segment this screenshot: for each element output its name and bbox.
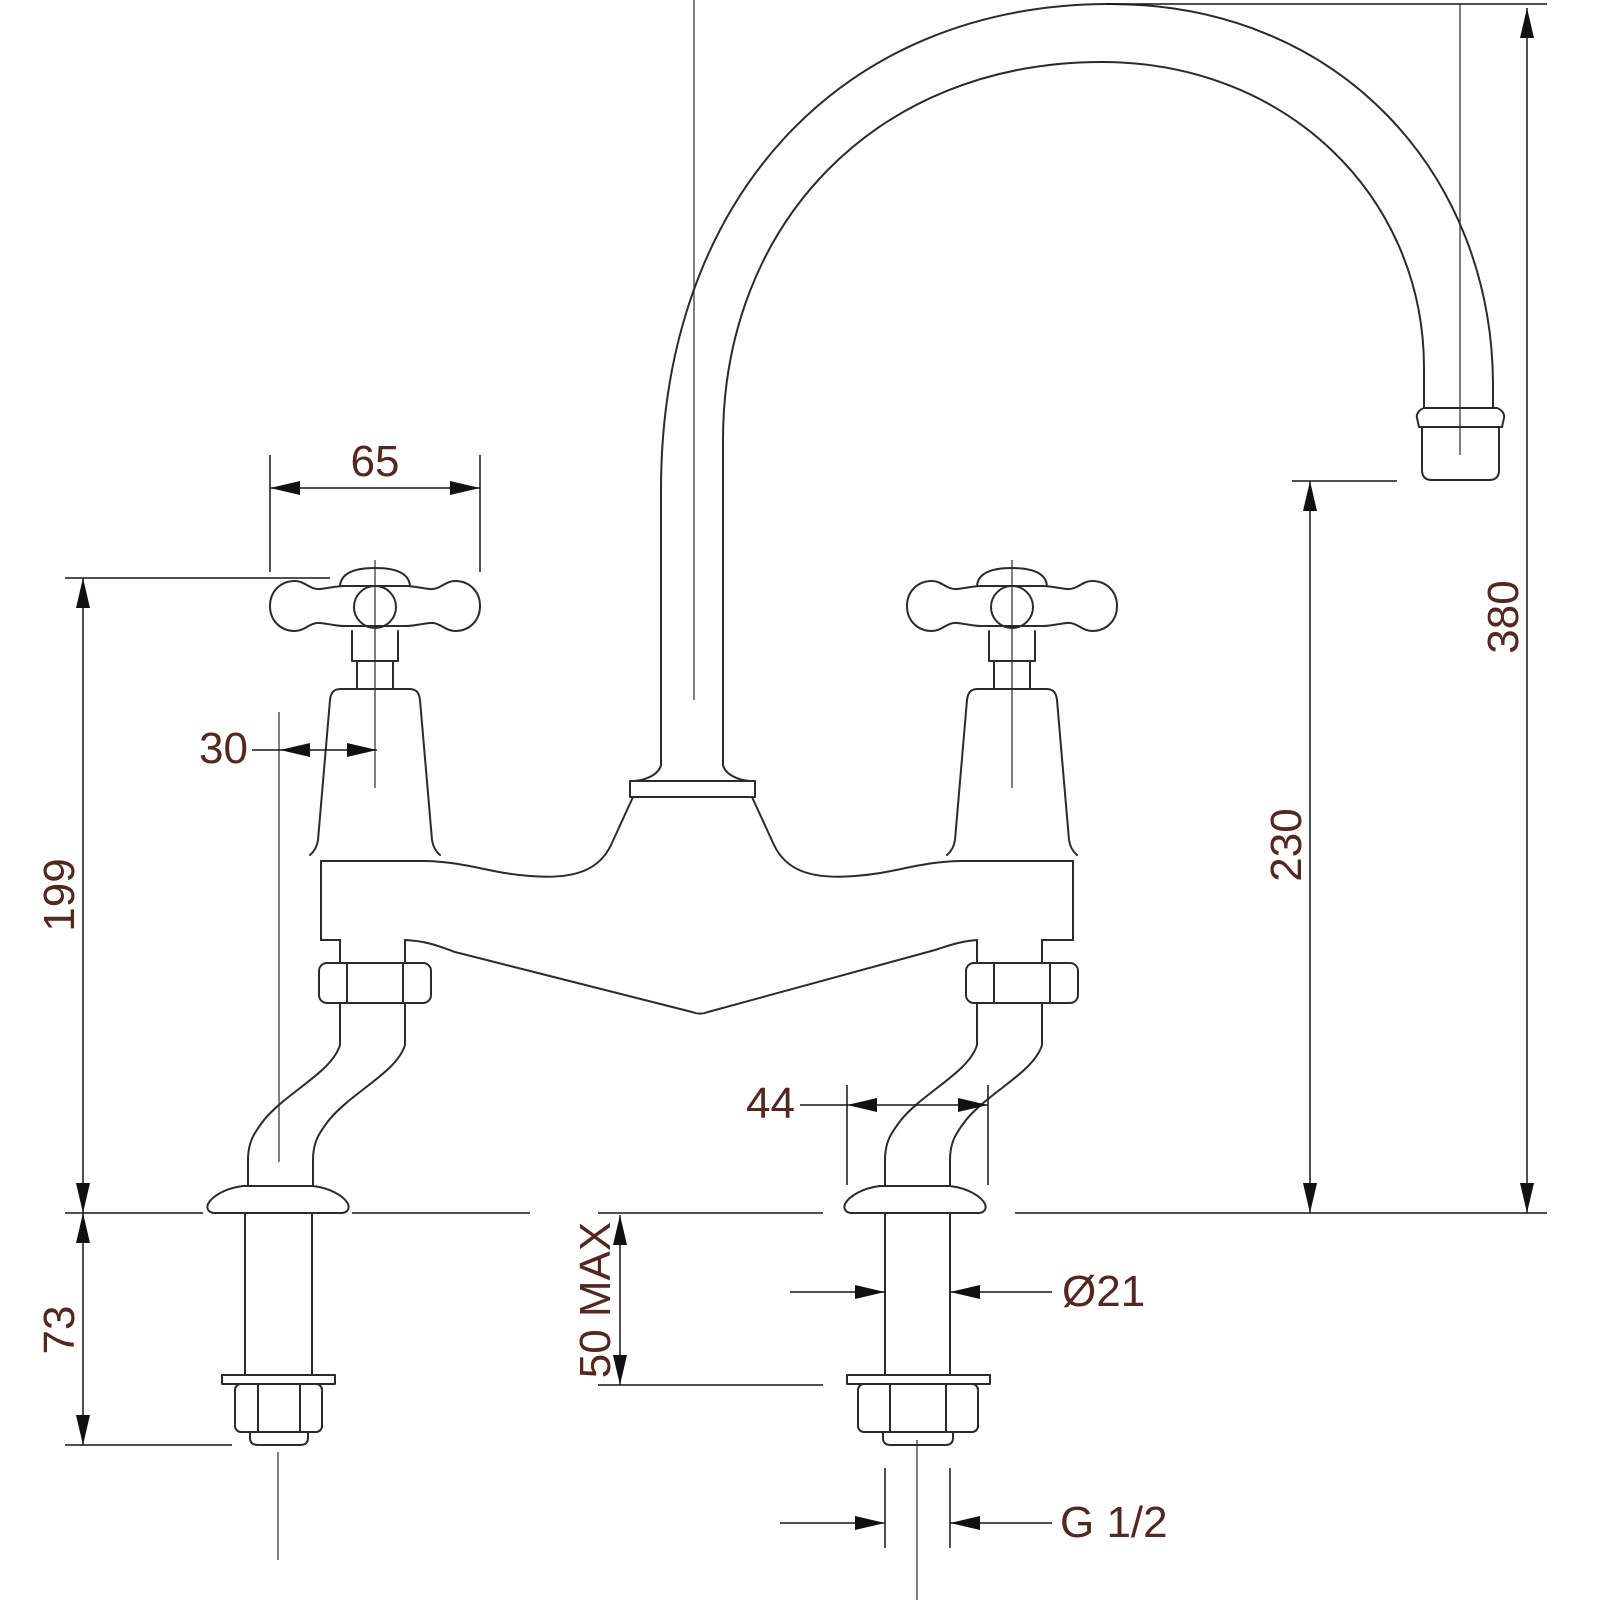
- arrow-dia21-left: [855, 1285, 885, 1299]
- right-sbend-inner: [950, 1003, 1042, 1186]
- arrow-230-bottom: [1303, 1183, 1317, 1213]
- left-sbend-outer: [248, 1003, 340, 1186]
- left-shank: [245, 1213, 312, 1375]
- arrow-44-right: [958, 1098, 988, 1112]
- dim-label-shank-diameter: Ø21: [1062, 1267, 1145, 1316]
- arrow-73-top: [76, 1213, 90, 1243]
- arrow-30-left: [280, 743, 310, 757]
- right-hex-nut: [966, 963, 1078, 1003]
- left-hex-nut: [319, 963, 431, 1003]
- left-backnut: [235, 1384, 322, 1432]
- left-backnut-band: [250, 1432, 308, 1445]
- dim-label-base-diameter: 44: [746, 1079, 795, 1128]
- drawing-canvas: 65 30 199 73 44 50 MAX Ø21 380 230 G 1/2: [0, 0, 1600, 1600]
- riser-collar: [630, 781, 755, 797]
- arrow-199-top: [76, 578, 90, 608]
- left-hex-facets: [347, 963, 403, 1003]
- tap-technical-drawing: 65 30 199 73 44 50 MAX Ø21 380 230 G 1/2: [0, 0, 1600, 1600]
- riser-flare-right: [723, 765, 750, 781]
- body-sides: [321, 861, 1073, 940]
- left-washer: [222, 1375, 335, 1384]
- left-sbend-inner: [313, 1003, 405, 1186]
- right-backnut: [858, 1384, 978, 1432]
- dim-label-deck-max: 50 MAX: [571, 1222, 620, 1379]
- dimension-arrows: [76, 8, 1534, 1530]
- body-top-right: [774, 845, 1073, 877]
- riser-base-cone: [611, 797, 774, 845]
- arrow-380-bottom: [1520, 1183, 1534, 1213]
- arrow-g12-left: [855, 1516, 885, 1530]
- body-top-left: [321, 845, 611, 877]
- right-backnut-band: [883, 1432, 953, 1445]
- right-shank: [885, 1213, 950, 1375]
- arrow-g12-right: [950, 1516, 980, 1530]
- dim-label-overall-height: 380: [1479, 580, 1528, 653]
- right-hex-facets: [994, 963, 1050, 1003]
- left-backnut-facets: [258, 1384, 300, 1432]
- riser-flare-left: [634, 765, 661, 781]
- arrow-380-top: [1520, 8, 1534, 38]
- dim-label-handle-offset: 30: [199, 724, 248, 773]
- spout-arch-inner: [723, 62, 1424, 765]
- arrow-230-top: [1303, 481, 1317, 511]
- dimension-lines: [65, 4, 1547, 1548]
- dim-44-extension: [847, 1085, 988, 1185]
- arrow-dia21-right: [950, 1285, 980, 1299]
- dim-label-thread: G 1/2: [1060, 1498, 1168, 1547]
- right-backnut-facets: [890, 1384, 946, 1432]
- arrow-65-right: [450, 481, 480, 495]
- arrow-30-right: [347, 743, 377, 757]
- dim-label-handle-width: 65: [351, 437, 400, 486]
- spout-arch-outer: [661, 4, 1493, 765]
- body-bottom-vee: [405, 940, 977, 1014]
- dim-label-below-deck: 73: [35, 1306, 84, 1355]
- dim-label-deck-to-handle: 199: [35, 858, 84, 931]
- valve-necks: [340, 940, 1042, 963]
- arrow-44-left: [847, 1098, 877, 1112]
- right-washer: [847, 1375, 990, 1384]
- center-lines: [278, 0, 1460, 1600]
- arrow-73-bottom: [76, 1415, 90, 1445]
- arrow-65-left: [270, 481, 300, 495]
- dim-label-outlet-height: 230: [1262, 808, 1311, 881]
- right-sbend-outer: [885, 1003, 977, 1186]
- left-base-flange: [207, 1186, 348, 1213]
- arrow-199-bottom: [76, 1183, 90, 1213]
- right-base-flange: [844, 1186, 985, 1213]
